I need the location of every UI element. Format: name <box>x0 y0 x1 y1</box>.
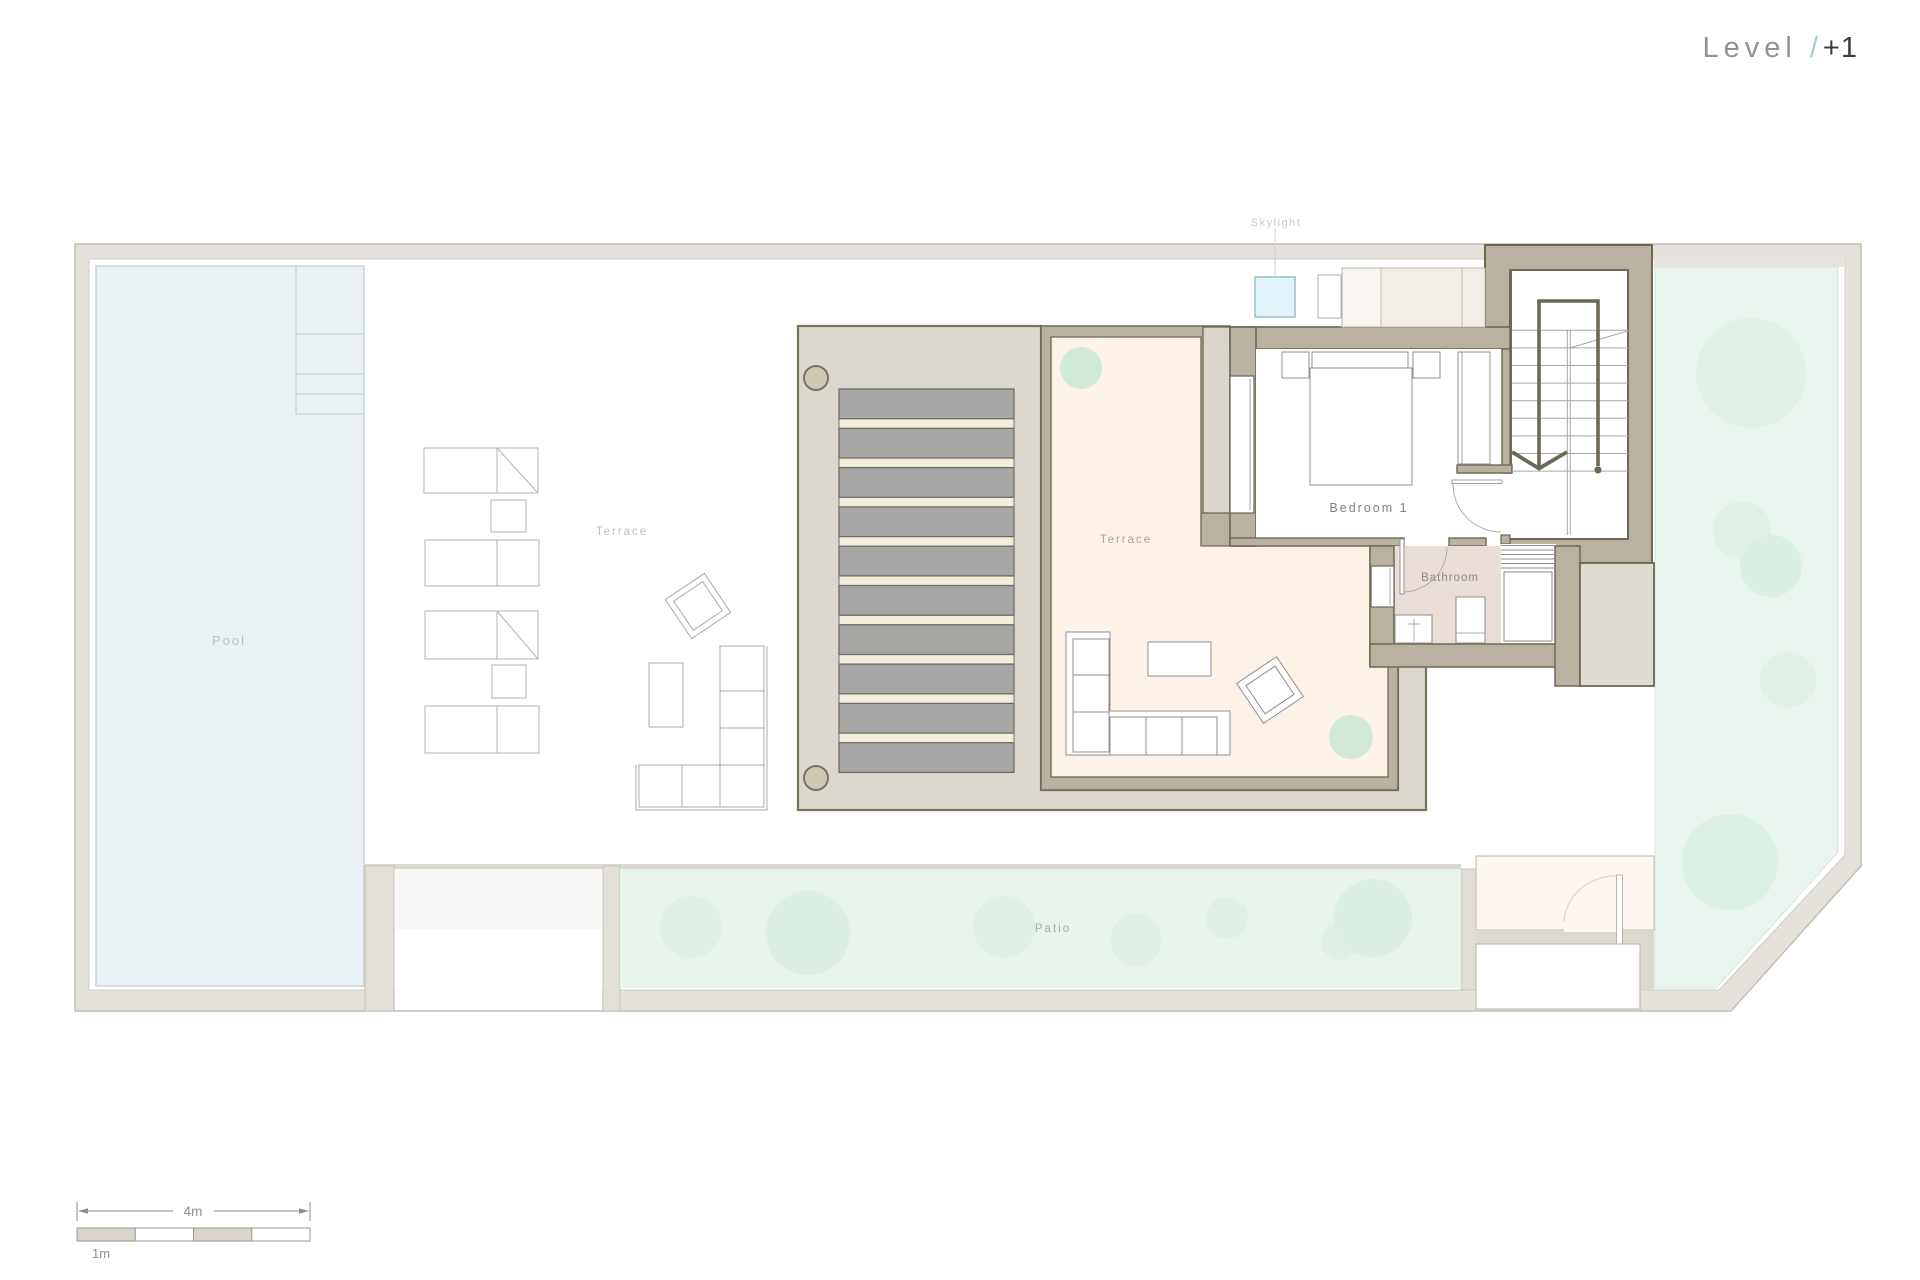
svg-text:Patio: Patio <box>1035 923 1071 935</box>
svg-text:Level /+1: Level /+1 <box>1702 32 1858 64</box>
svg-text:Terrace: Terrace <box>1100 534 1152 546</box>
svg-text:1m: 1m <box>92 1246 110 1261</box>
svg-text:Skylight: Skylight <box>1251 217 1302 229</box>
svg-text:Terrace: Terrace <box>596 526 648 538</box>
svg-text:Pool: Pool <box>212 633 246 648</box>
svg-text:4m: 4m <box>184 1204 203 1219</box>
svg-text:Bedroom 1: Bedroom 1 <box>1329 501 1408 515</box>
